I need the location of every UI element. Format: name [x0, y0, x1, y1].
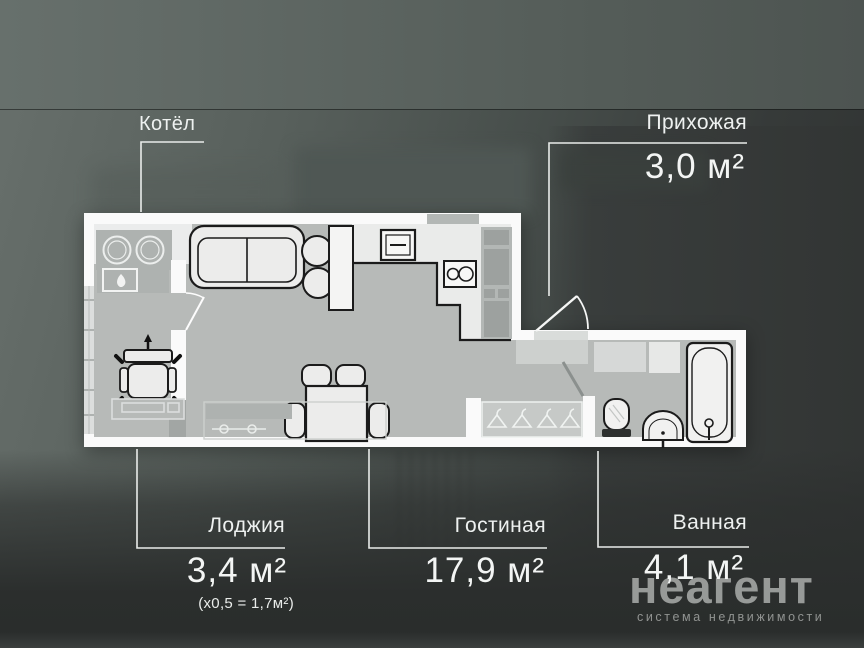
entrance-door-icon [534, 296, 588, 340]
vent-shaft [427, 214, 479, 224]
sofa-icon [190, 226, 304, 288]
label-gostinaya: Гостиная [455, 514, 546, 538]
area-gostinaya: 17,9 м² [424, 551, 545, 591]
floorplan-scene: неагент система недвижимости Котёл Прихо… [0, 0, 864, 648]
hall-partition-wall [466, 398, 481, 437]
hob-icon [444, 261, 476, 287]
dining-table [306, 386, 367, 441]
boiler-icon [97, 267, 169, 293]
watermark-tagline: система недвижимости [637, 610, 824, 624]
bath-niche [649, 342, 680, 373]
label-vannaya: Ванная [673, 511, 747, 535]
shelf-icon [112, 399, 184, 419]
area-prihozhaya: 3,0 м² [645, 147, 745, 187]
label-lodzhiya: Лоджия [208, 514, 285, 538]
counter-icon [329, 226, 353, 310]
label-prihozhaya: Прихожая [646, 111, 747, 135]
window-icon [84, 286, 94, 434]
hall-niche [594, 342, 646, 372]
leader-kotel [141, 142, 204, 212]
hanger-rack-icon [482, 402, 582, 437]
entry-floor [516, 340, 588, 364]
label-kotel: Котёл [139, 113, 195, 136]
washer-icon [96, 230, 172, 270]
wardrobe-icon [481, 227, 512, 339]
sink-kitchen-icon [381, 230, 415, 260]
toilet-icon [602, 399, 631, 437]
bathtub-icon [687, 343, 732, 442]
area-lodzhiya: 3,4 м² [187, 551, 287, 591]
note-lodzhiya: (х0,5 = 1,7м²) [198, 595, 294, 612]
area-vannaya: 4,1 м² [644, 548, 744, 588]
